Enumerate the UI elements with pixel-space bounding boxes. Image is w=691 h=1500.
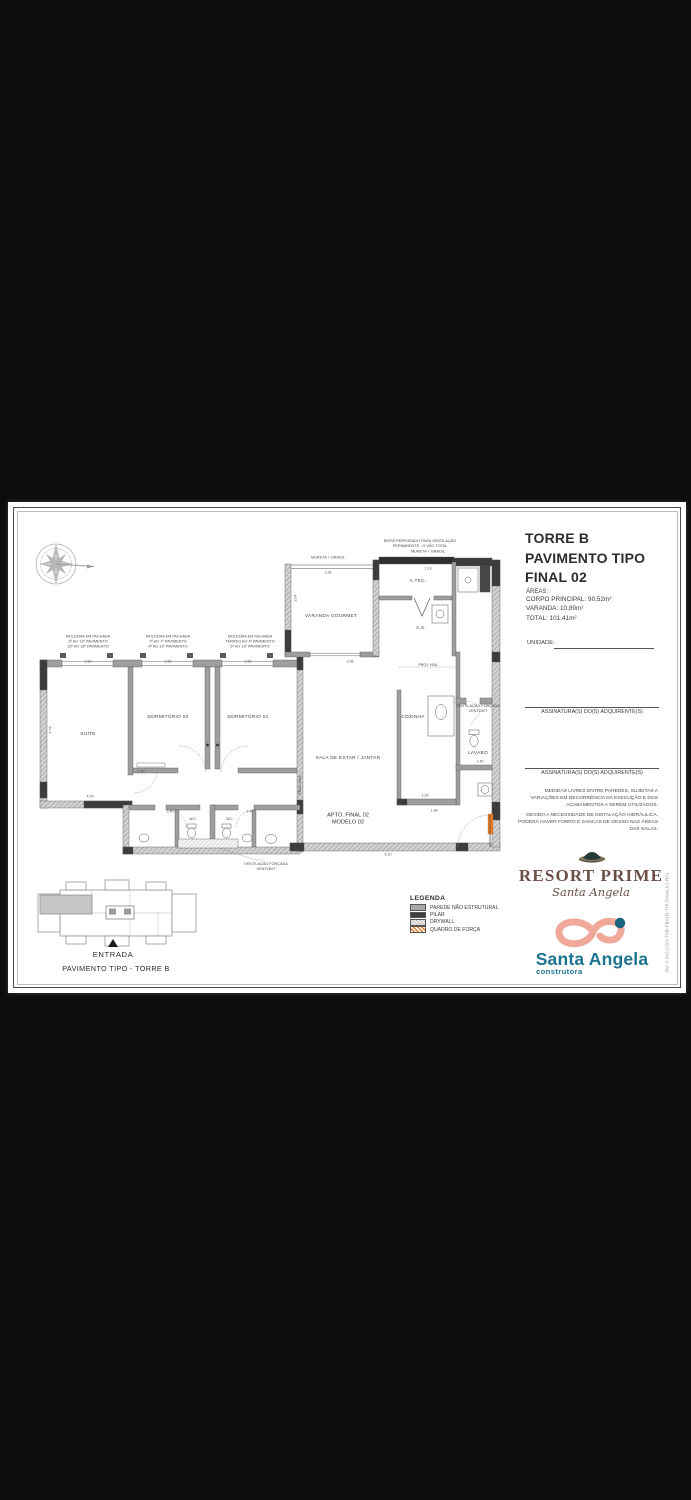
legend-item-drywall: DRYWALL	[410, 919, 498, 926]
unidade-fill-line	[554, 648, 654, 649]
leader-lines	[218, 715, 490, 860]
drywall-swatch-icon	[410, 919, 426, 926]
signature-caption-2: ASSINATURA(S) DO(S) ADQUIRENTE(S)	[525, 770, 659, 776]
room-label-atec: A.TEC.	[410, 579, 427, 585]
apto-label: APTO. FINAL 02 MODELO 02	[327, 813, 369, 828]
legend-item-quadro: QUADRO DE FORÇA	[410, 926, 498, 933]
room-label-dormitorio-01: DORMITÓRIO 01	[227, 715, 268, 721]
resort-prime-script-text: Santa Angela	[552, 885, 630, 899]
annotation-proj-viga-1: PROJ. VIGA	[418, 663, 437, 667]
drawing-code-vertical: BU-3 INC-COV-T0B-FB01B-TIP-FINAL02-R01	[665, 872, 670, 972]
area-corpo-principal: CORPO PRINCIPAL: 90,52m²	[526, 596, 611, 605]
dim: 4.00	[87, 795, 94, 800]
dim: 2.80	[85, 660, 92, 665]
dim: 5.10	[385, 853, 392, 858]
signature-caption-1: ASSINATURA(S) DO(S) ADQUIRENTE(S)	[525, 709, 659, 715]
dim: 3.98	[347, 660, 354, 665]
room-label-varanda-gourmet: VARANDA GOURMET	[305, 614, 357, 620]
dim: 1.19	[425, 567, 432, 572]
legend-title: LEGENDA	[410, 895, 498, 902]
area-varanda: VARANDA: 10,89m²	[526, 605, 583, 614]
key-plan-caption: PAVIMENTO TIPO - TORRE B	[62, 964, 169, 973]
parede-nao-estrutural-swatch-icon	[410, 904, 426, 911]
key-plan-highlighted-unit	[40, 895, 92, 914]
unidade-label: UNIDADE:	[527, 640, 555, 646]
legend-item-parede: PAREDE NÃO ESTRUTURAL	[410, 904, 498, 911]
santa-angela-swan-icon	[559, 918, 625, 944]
annotation-mureta-2: MURETA + GRADIL	[411, 550, 445, 555]
legend-item-pilar: PILAR	[410, 911, 498, 918]
sheet-title: TORRE B PAVIMENTO TIPO FINAL 02	[525, 529, 645, 588]
room-label-suite: SUÍTE	[80, 732, 95, 738]
room-label-wc-1: W.C.	[189, 817, 196, 821]
compass-rose-icon	[36, 544, 94, 584]
annotation-moldura-3: MOLDURA EM FACHADA TÉRREO AO 4º PAVIMENT…	[225, 635, 275, 650]
room-label-wc-2: W.C.	[226, 817, 233, 821]
dim: 2.50	[165, 660, 172, 665]
room-label-as: A.S.	[416, 626, 426, 632]
signature-line-2	[525, 768, 659, 769]
dim: 2.40	[167, 810, 174, 815]
room-label-cozinha: COZINHA	[401, 715, 424, 721]
door-swings	[134, 667, 490, 847]
dim: 1.40	[477, 760, 484, 765]
dim: 2.04	[294, 595, 299, 602]
viewer-letterbox: { "title": {"lines": "TORRE B\nPAVIMENTO…	[0, 0, 691, 1500]
annotation-moldura-1: MOLDURA EM FACHADA 3º AO 13º PAVIMENTO 1…	[66, 635, 111, 650]
annotation-proj-viga-2: PROJ. VIGA	[298, 775, 302, 794]
annotation-mureta-1: MURETA + GRADIL	[311, 556, 345, 561]
room-label-sala: SALA DE ESTAR / JANTAR	[316, 756, 381, 762]
key-plan	[38, 880, 196, 947]
dim: 4.75	[49, 727, 54, 734]
resort-prime-logo-text: RESORT PRIME	[519, 866, 663, 886]
santa-angela-construtora-text: construtora	[536, 967, 583, 976]
signature-line-1	[525, 707, 659, 708]
dim: 3.34	[325, 571, 332, 576]
pilar-swatch-icon	[410, 912, 426, 919]
dim: 2.50	[245, 660, 252, 665]
legend: LEGENDA PAREDE NÃO ESTRUTURAL PILAR DRYW…	[410, 895, 498, 933]
entrada-label: ENTRADA	[93, 950, 134, 959]
room-label-dormitorio-02: DORMITÓRIO 02	[147, 715, 188, 721]
area-total: TOTAL: 101,41m²	[526, 615, 577, 624]
dim: 1.40	[138, 770, 145, 775]
quadro-de-forca-swatch-icon	[410, 926, 426, 933]
plan-sheet: TORRE B PAVIMENTO TIPO FINAL 02 ÁREAS: C…	[8, 502, 686, 993]
resort-prime-hat-icon	[579, 852, 605, 863]
annotation-brise: BRISE PERFURADO PARA VENTILAÇÃO PERMANEN…	[384, 539, 456, 549]
annotation-ventokit-2: VENTILAÇÃO FORÇADA VENTOKIT	[244, 862, 288, 872]
annotation-ventokit-1: VENTILAÇÃO FORÇADA VENTOKIT	[456, 704, 500, 714]
dim: 1.98	[431, 809, 438, 814]
room-label-lavabo: LAVABO	[468, 751, 488, 757]
note-medidas: MEDIDAS LIVRES ENTRE PAREDES, SUJEITAS A…	[516, 788, 658, 809]
dim: 2.40	[247, 810, 254, 815]
dim: 1.30	[422, 794, 429, 799]
quadro-de-forca-marker	[488, 814, 493, 834]
note-hidraulica: DEVIDO A NECESSIDADE DE INSTALAÇÃO HIDRÁ…	[516, 812, 658, 833]
annotation-moldura-2: MOLDURA EM FACHADA 2º AO 7º PAVIMENTO 9º…	[146, 635, 191, 650]
